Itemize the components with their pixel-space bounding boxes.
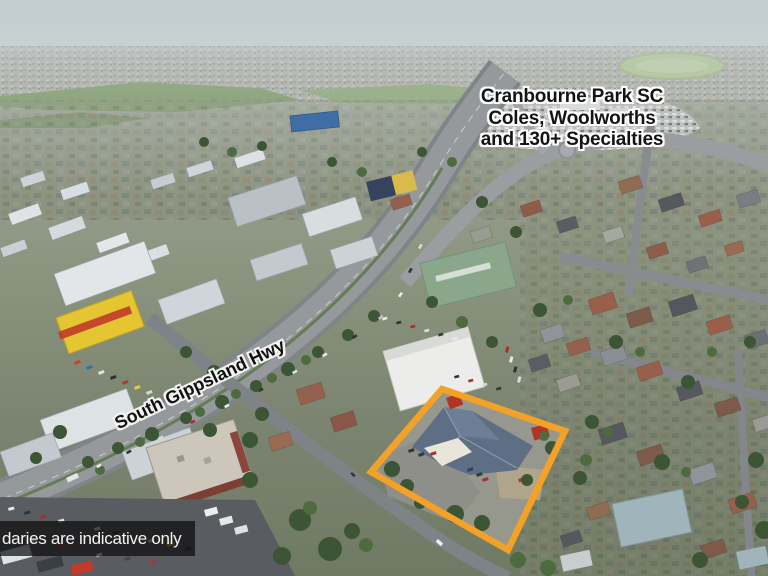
annotation-line-3: and 130+ Specialties [442,129,702,151]
disclaimer-text: daries are indicative only [2,529,181,548]
annotation-line-2: Coles, Woolworths [442,108,702,130]
annotation-line-1: Cranbourne Park SC [442,86,702,108]
shopping-centre-annotation: Cranbourne Park SC Coles, Woolworths and… [442,86,702,151]
disclaimer-bar: daries are indicative only [0,521,195,556]
aerial-photo: Cranbourne Park SC Coles, Woolworths and… [0,0,768,576]
